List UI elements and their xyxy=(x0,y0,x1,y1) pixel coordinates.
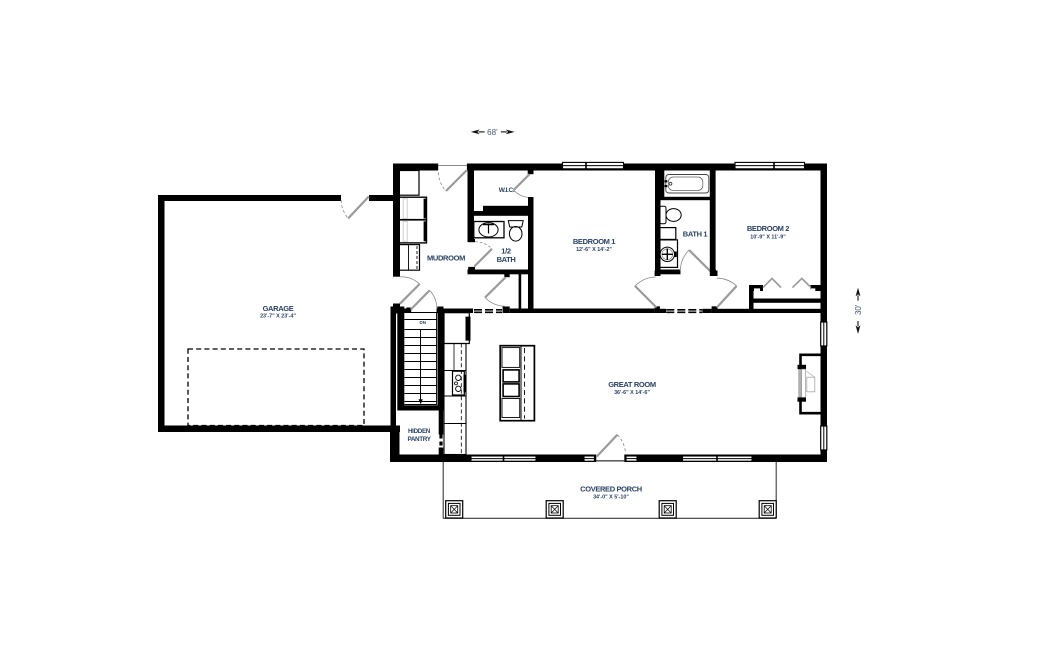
svg-text:GARAGE: GARAGE xyxy=(263,304,294,313)
svg-text:30': 30' xyxy=(854,304,863,315)
svg-text:COVERED PORCH: COVERED PORCH xyxy=(580,484,642,493)
svg-text:BEDROOM 2: BEDROOM 2 xyxy=(747,224,789,233)
svg-text:W.I.C.: W.I.C. xyxy=(499,187,515,194)
svg-text:BATH 1: BATH 1 xyxy=(683,230,708,239)
svg-text:MUDROOM: MUDROOM xyxy=(427,254,465,263)
svg-text:23'-7" X 23'-4": 23'-7" X 23'-4" xyxy=(260,314,296,320)
svg-text:36'-6" X 14'-6": 36'-6" X 14'-6" xyxy=(614,390,650,396)
svg-text:68': 68' xyxy=(487,128,498,137)
svg-text:HIDDEN: HIDDEN xyxy=(408,428,431,435)
svg-text:BATH: BATH xyxy=(497,255,516,264)
svg-text:GREAT ROOM: GREAT ROOM xyxy=(608,380,656,389)
svg-text:BEDROOM 1: BEDROOM 1 xyxy=(573,237,615,246)
svg-text:34'-0" X 5'-10": 34'-0" X 5'-10" xyxy=(593,494,629,500)
svg-text:PANTRY: PANTRY xyxy=(407,436,431,443)
svg-text:12'-6" X 14'-2": 12'-6" X 14'-2" xyxy=(576,247,612,253)
svg-text:10'-9" X 11'-9": 10'-9" X 11'-9" xyxy=(750,234,786,240)
svg-text:DN: DN xyxy=(420,320,427,325)
